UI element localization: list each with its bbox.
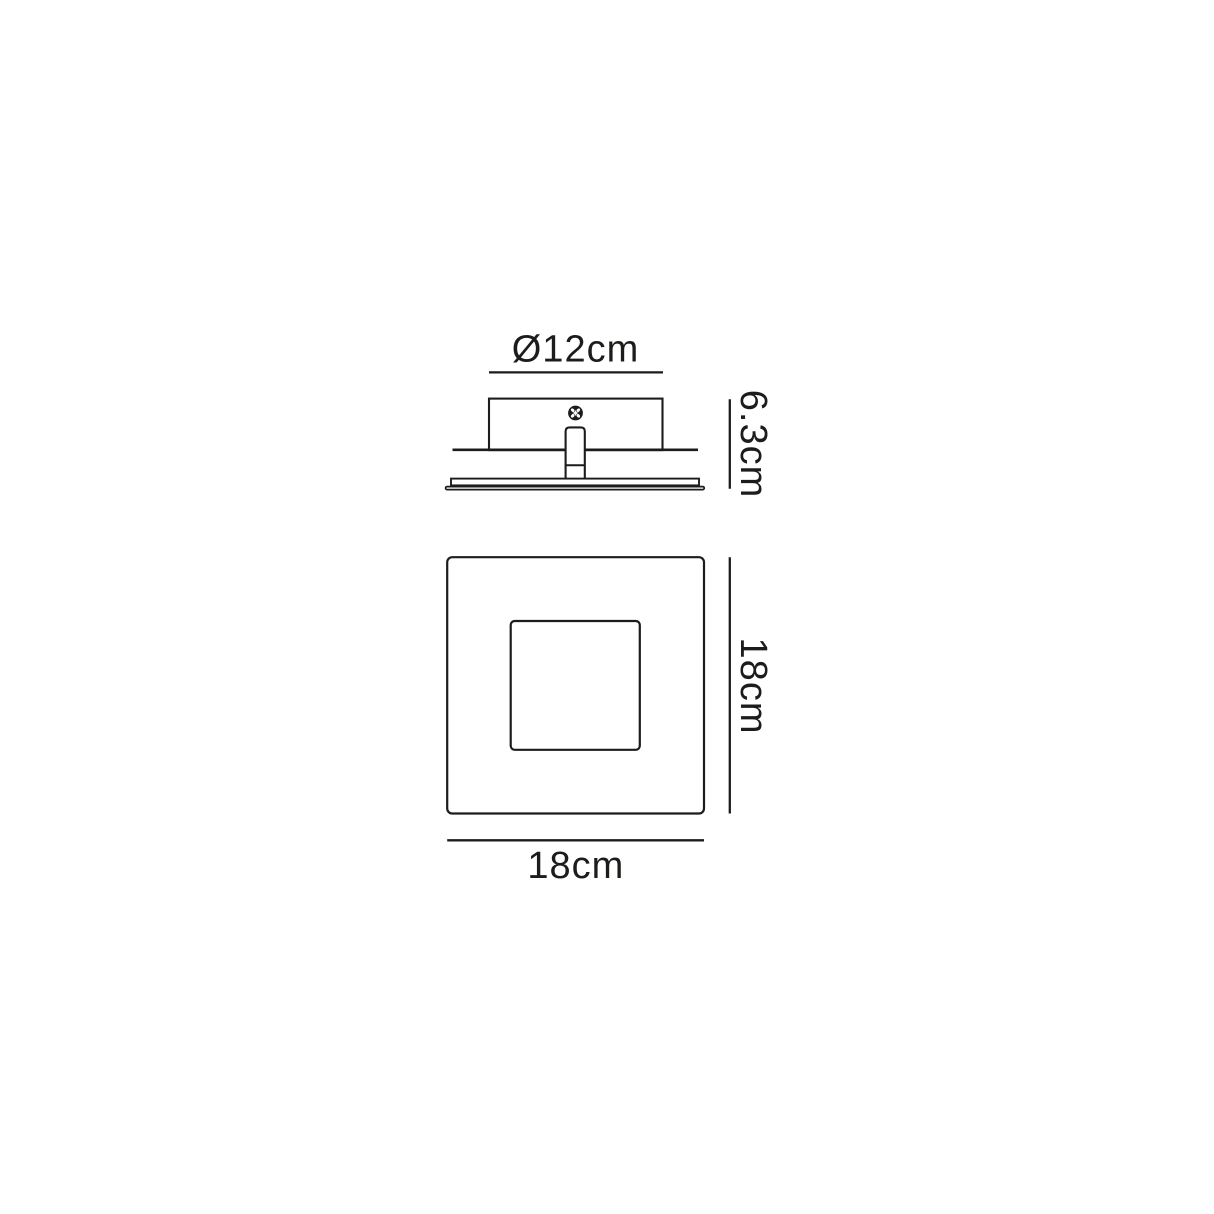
svg-text:Ø12cm: Ø12cm bbox=[512, 329, 639, 371]
svg-text:18cm: 18cm bbox=[732, 638, 774, 735]
svg-text:18cm: 18cm bbox=[527, 845, 624, 887]
svg-text:6.3cm: 6.3cm bbox=[732, 390, 774, 498]
